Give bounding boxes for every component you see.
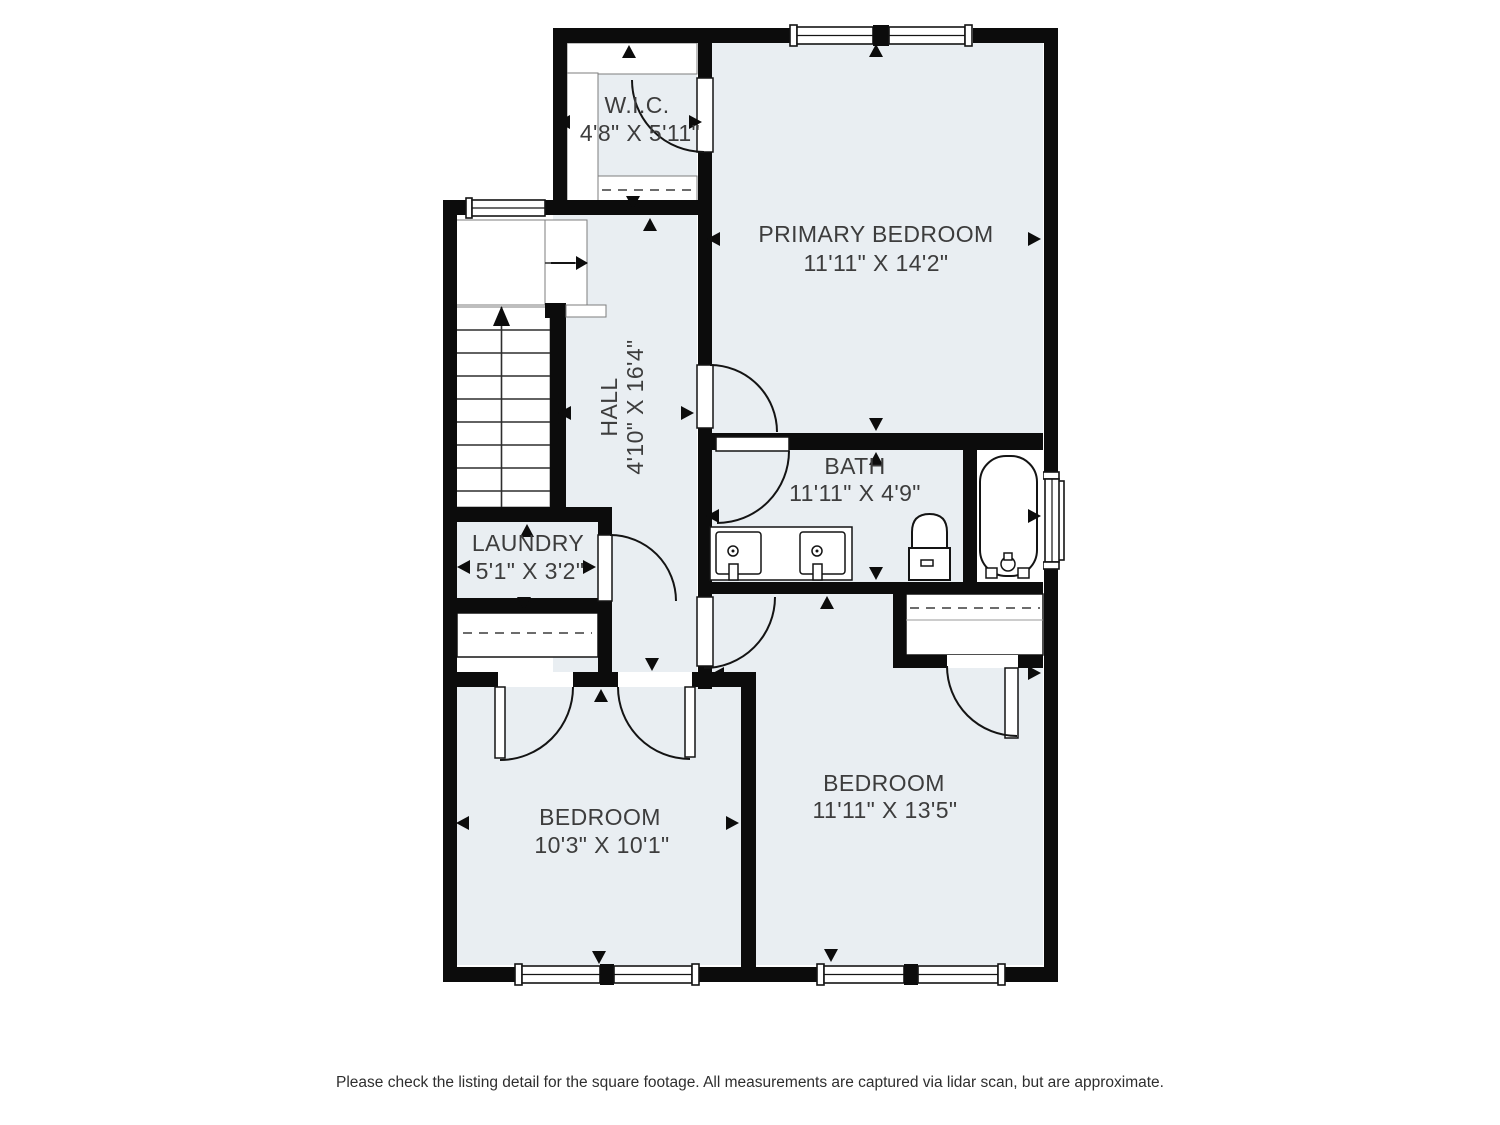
stair-half-wall-shelf [566, 305, 606, 317]
window-primary-top [790, 25, 972, 46]
room-dims-label: 4'8" X 5'11" [580, 120, 700, 146]
room-dims-label: 5'1" X 3'2" [476, 558, 585, 584]
bedroom-left-closet [457, 613, 598, 657]
room-dims-label: 4'10" X 16'4" [622, 339, 648, 474]
window-stair-top [466, 198, 545, 218]
room-name-label: W.I.C. [604, 92, 669, 118]
room-bedroom-right: BEDROOM 11'11" X 13'5" [813, 770, 958, 823]
room-name-label: HALL [596, 377, 622, 436]
room-name-label: BATH [824, 453, 885, 479]
vanity [710, 527, 852, 580]
room-dims-label: 10'3" X 10'1" [534, 832, 669, 858]
room-name-label: LAUNDRY [472, 530, 584, 556]
window-bedroom-left-bottom [515, 964, 699, 985]
floorplan-page: W.I.C. 4'8" X 5'11" PRIMARY BEDROOM 11'1… [0, 0, 1500, 1125]
room-dims-label: 11'11" X 14'2" [804, 250, 949, 276]
toilet [909, 514, 950, 580]
disclaimer-text: Please check the listing detail for the … [0, 1074, 1500, 1092]
room-name-label: BEDROOM [539, 804, 661, 830]
floorplan: W.I.C. 4'8" X 5'11" PRIMARY BEDROOM 11'1… [0, 0, 1500, 1125]
bedroom-right-closet [906, 594, 1043, 655]
room-name-label: BEDROOM [823, 770, 945, 796]
room-dims-label: 11'11" X 13'5" [813, 797, 958, 823]
sink-right [800, 532, 845, 580]
window-bath-right [1043, 472, 1064, 569]
window-bedroom-right-bottom [817, 964, 1005, 985]
room-dims-label: 11'11" X 4'9" [789, 480, 921, 506]
sink-left [716, 532, 761, 580]
stair-landing [453, 220, 545, 305]
room-name-label: PRIMARY BEDROOM [758, 221, 993, 247]
